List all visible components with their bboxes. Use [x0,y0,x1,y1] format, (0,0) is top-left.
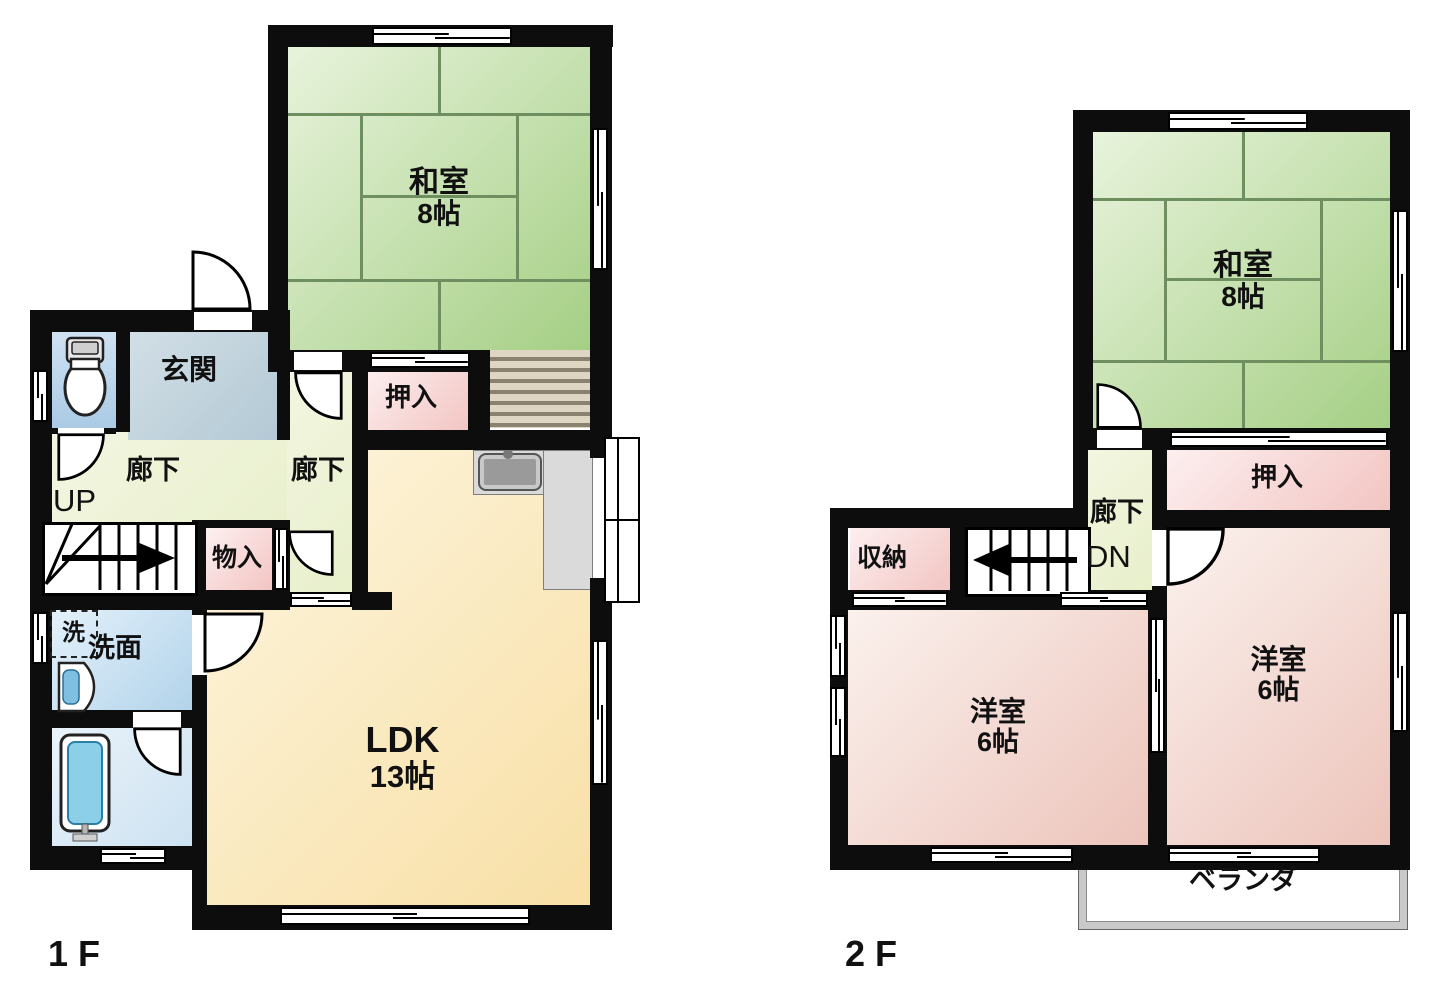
window [830,687,846,757]
label-ldk: LDK13帖 [330,722,475,792]
label-corridor-1f-a: 廊下 [126,456,180,486]
door-opening [1152,530,1167,586]
label-corridor-2f: 廊下 [1090,498,1144,528]
wall [352,592,392,610]
window [280,907,530,925]
label-senmen: 洗面 [88,634,142,664]
window [930,847,1073,863]
wall [950,508,965,592]
kitchen-sink [478,453,542,491]
label-washitsu-1f: 和室8帖 [288,45,590,350]
label-floor-1f: 1 F [48,934,100,974]
window [100,848,166,864]
label-up: UP [53,484,96,518]
staircase-1f [42,522,198,596]
wall [1160,510,1390,528]
window [1168,847,1320,863]
window [592,128,608,270]
corridor-ldk-door-arc [288,531,333,576]
wall [1073,110,1093,450]
monoire-sliding-door [274,528,288,590]
door-opening [294,352,342,370]
window [830,615,846,677]
ldk-senmen-door-arc [204,613,264,673]
label-youshitsu-right: 洋室6帖 [1167,560,1390,790]
shuunou-sliding-door [852,592,948,607]
window [1392,612,1408,732]
door-opening [133,712,181,728]
toilet-icon [62,336,108,424]
kitchen-counter-side [543,450,593,590]
label-laundry: 洗 [62,620,85,645]
door-opening [194,312,252,330]
youshitsu-left-sliding-door [1060,592,1148,607]
wall [352,372,368,610]
senmen-sink-icon [56,660,98,714]
label-dn: DN [1086,540,1131,574]
label-monoire: 物入 [212,545,262,573]
bay-window [604,437,640,603]
fusuma-oshiire-1f [370,352,470,368]
label-oshiire-1f: 押入 [385,383,437,412]
window [32,370,48,422]
label-veranda: ベランダ [1078,866,1408,896]
staircase-2f [965,527,1091,597]
label-oshiire-2f: 押入 [1251,463,1303,492]
washitsu1f-door-arc [294,372,342,420]
label-shuunou: 収納 [857,545,907,573]
window [592,640,608,785]
window [1392,210,1408,352]
window [1150,618,1165,753]
label-youshitsu-left: 洋室6帖 [848,610,1148,845]
wall [352,430,593,450]
fusuma-oshiire-2f [1170,431,1388,447]
floor-plan: 和室8帖 玄関 廊下 廊下 UP 押入 物入 洗 洗面 LDK13帖 1 F 和… [0,0,1440,1005]
front-door-arc [192,250,252,310]
label-floor-2f: 2 F [845,934,897,974]
bathtub-icon [58,732,112,844]
wall [116,310,130,432]
door-opening [1097,430,1142,448]
toilet-door-arc [58,434,105,481]
label-washitsu-2f: 和室8帖 [1093,132,1393,430]
ldk-corridor-opening [290,592,352,607]
engawa-strip [490,350,590,428]
kitchen-faucet-icon [503,449,513,459]
bath-door-arc [133,728,181,776]
window [32,612,48,664]
window [1168,112,1308,130]
label-corridor-1f-b: 廊下 [291,456,345,486]
label-genkan: 玄関 [161,355,217,386]
window [372,27,512,45]
wall [468,352,490,430]
